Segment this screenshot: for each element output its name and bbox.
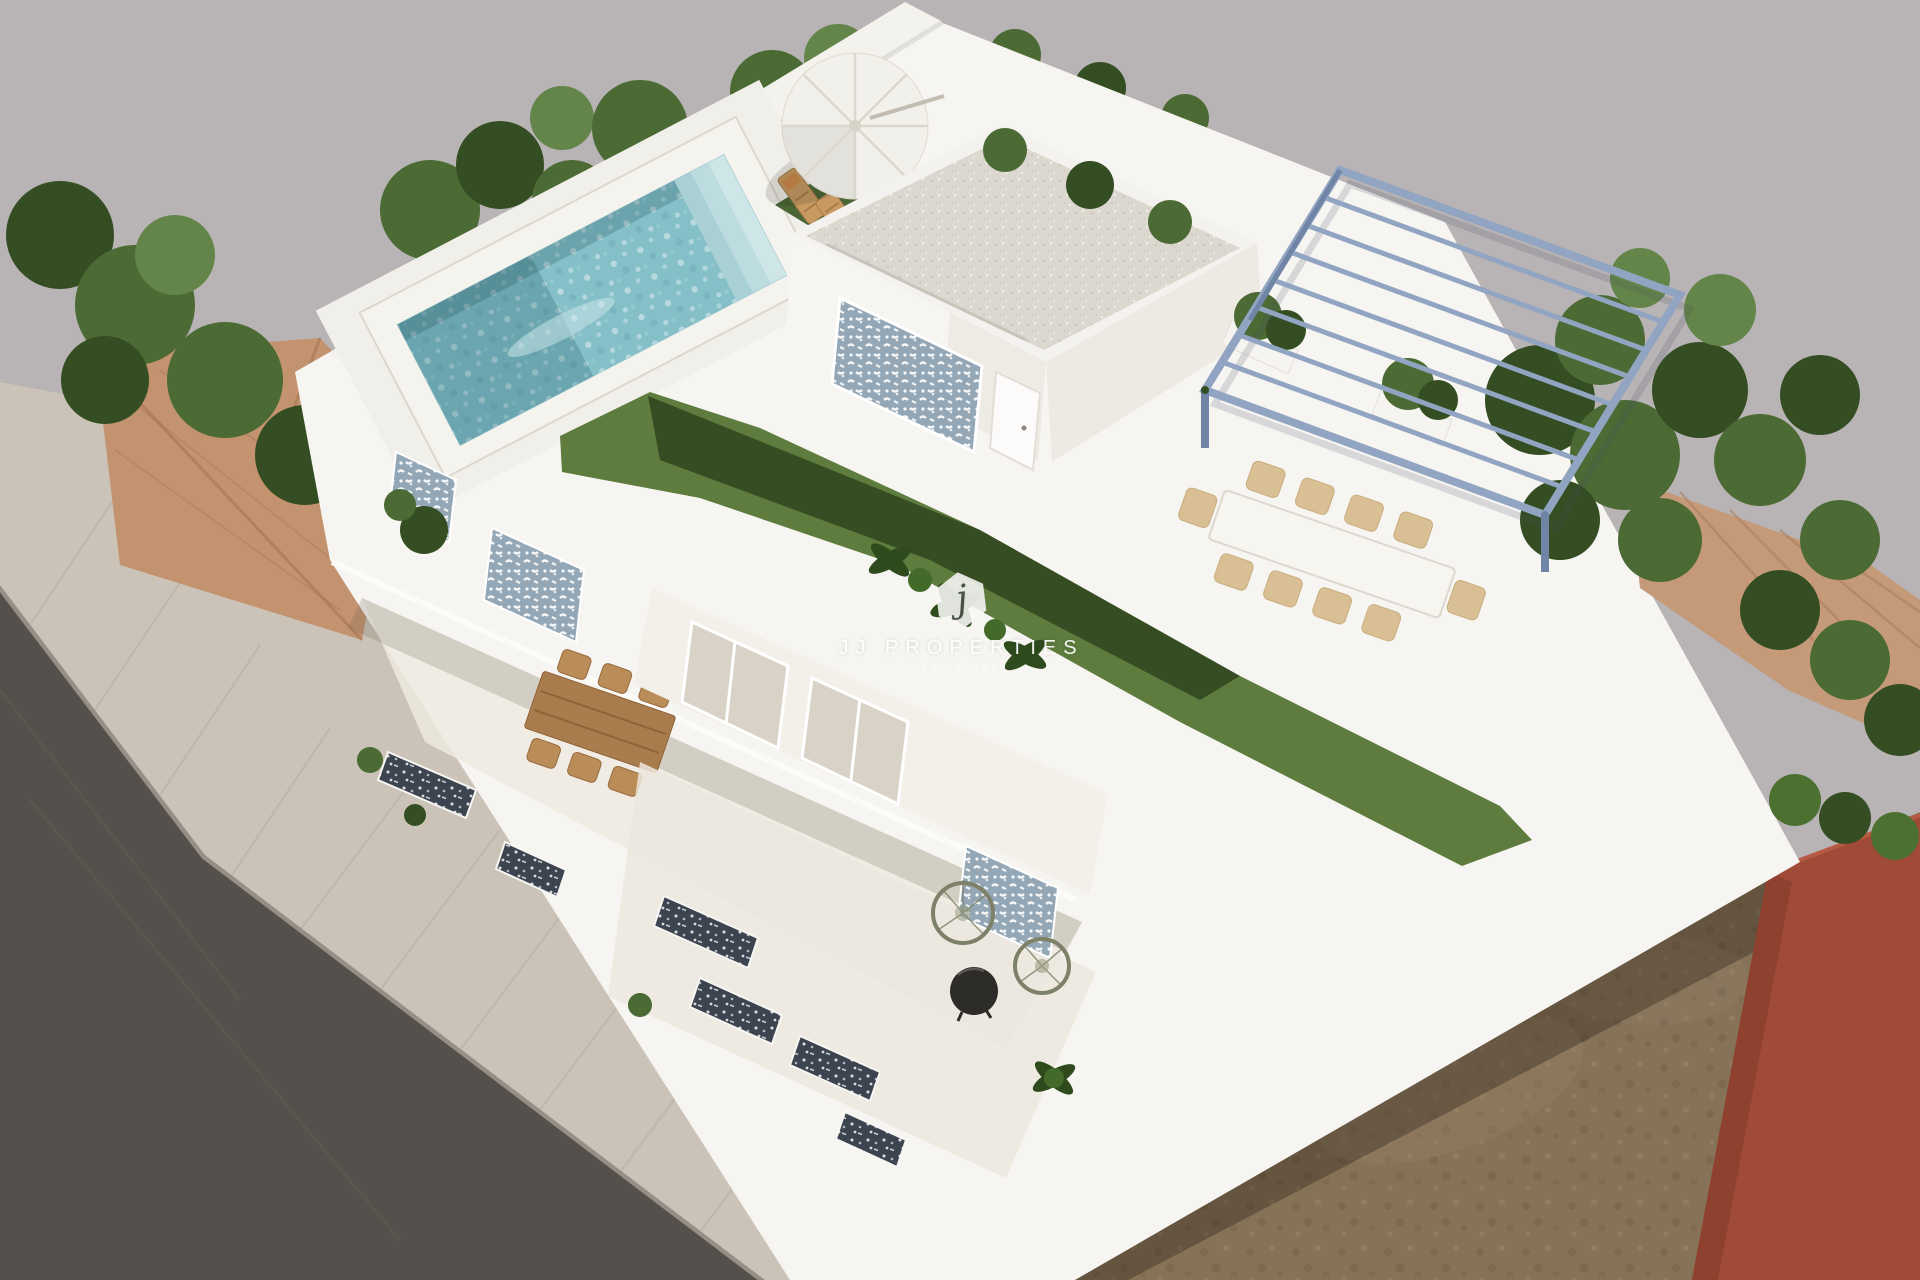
parasol-cap xyxy=(849,120,861,132)
plant-center xyxy=(908,568,932,592)
planter-shrub xyxy=(1066,161,1114,209)
plant-center xyxy=(984,619,1006,641)
door-handle xyxy=(1022,426,1027,431)
tree xyxy=(1714,414,1806,506)
planter-shrub xyxy=(1148,200,1192,244)
shrub xyxy=(628,993,652,1017)
hedge-bush xyxy=(1871,812,1919,860)
tree xyxy=(1810,620,1890,700)
tree xyxy=(1684,274,1756,346)
tree xyxy=(456,121,544,209)
tree xyxy=(1800,500,1880,580)
villa-aerial-render: j JJ PROPERTIES REAL ESTATE xyxy=(0,0,1920,1280)
pergola-joint xyxy=(1541,511,1549,519)
terrace-plant xyxy=(384,489,416,521)
hedge-bush xyxy=(1769,774,1821,826)
tree xyxy=(61,336,149,424)
planter-shrub xyxy=(983,128,1027,172)
chair-hub xyxy=(1035,959,1049,973)
shrub xyxy=(404,804,426,826)
shrub xyxy=(357,747,383,773)
tree xyxy=(135,215,215,295)
tree xyxy=(1780,355,1860,435)
render-canvas xyxy=(0,0,1920,1280)
pergola-joint xyxy=(1201,386,1209,394)
hedge-bush xyxy=(1819,792,1871,844)
tree xyxy=(1740,570,1820,650)
tree xyxy=(167,322,283,438)
chair-hub xyxy=(955,905,971,921)
tree xyxy=(530,86,594,150)
tree xyxy=(1618,498,1702,582)
